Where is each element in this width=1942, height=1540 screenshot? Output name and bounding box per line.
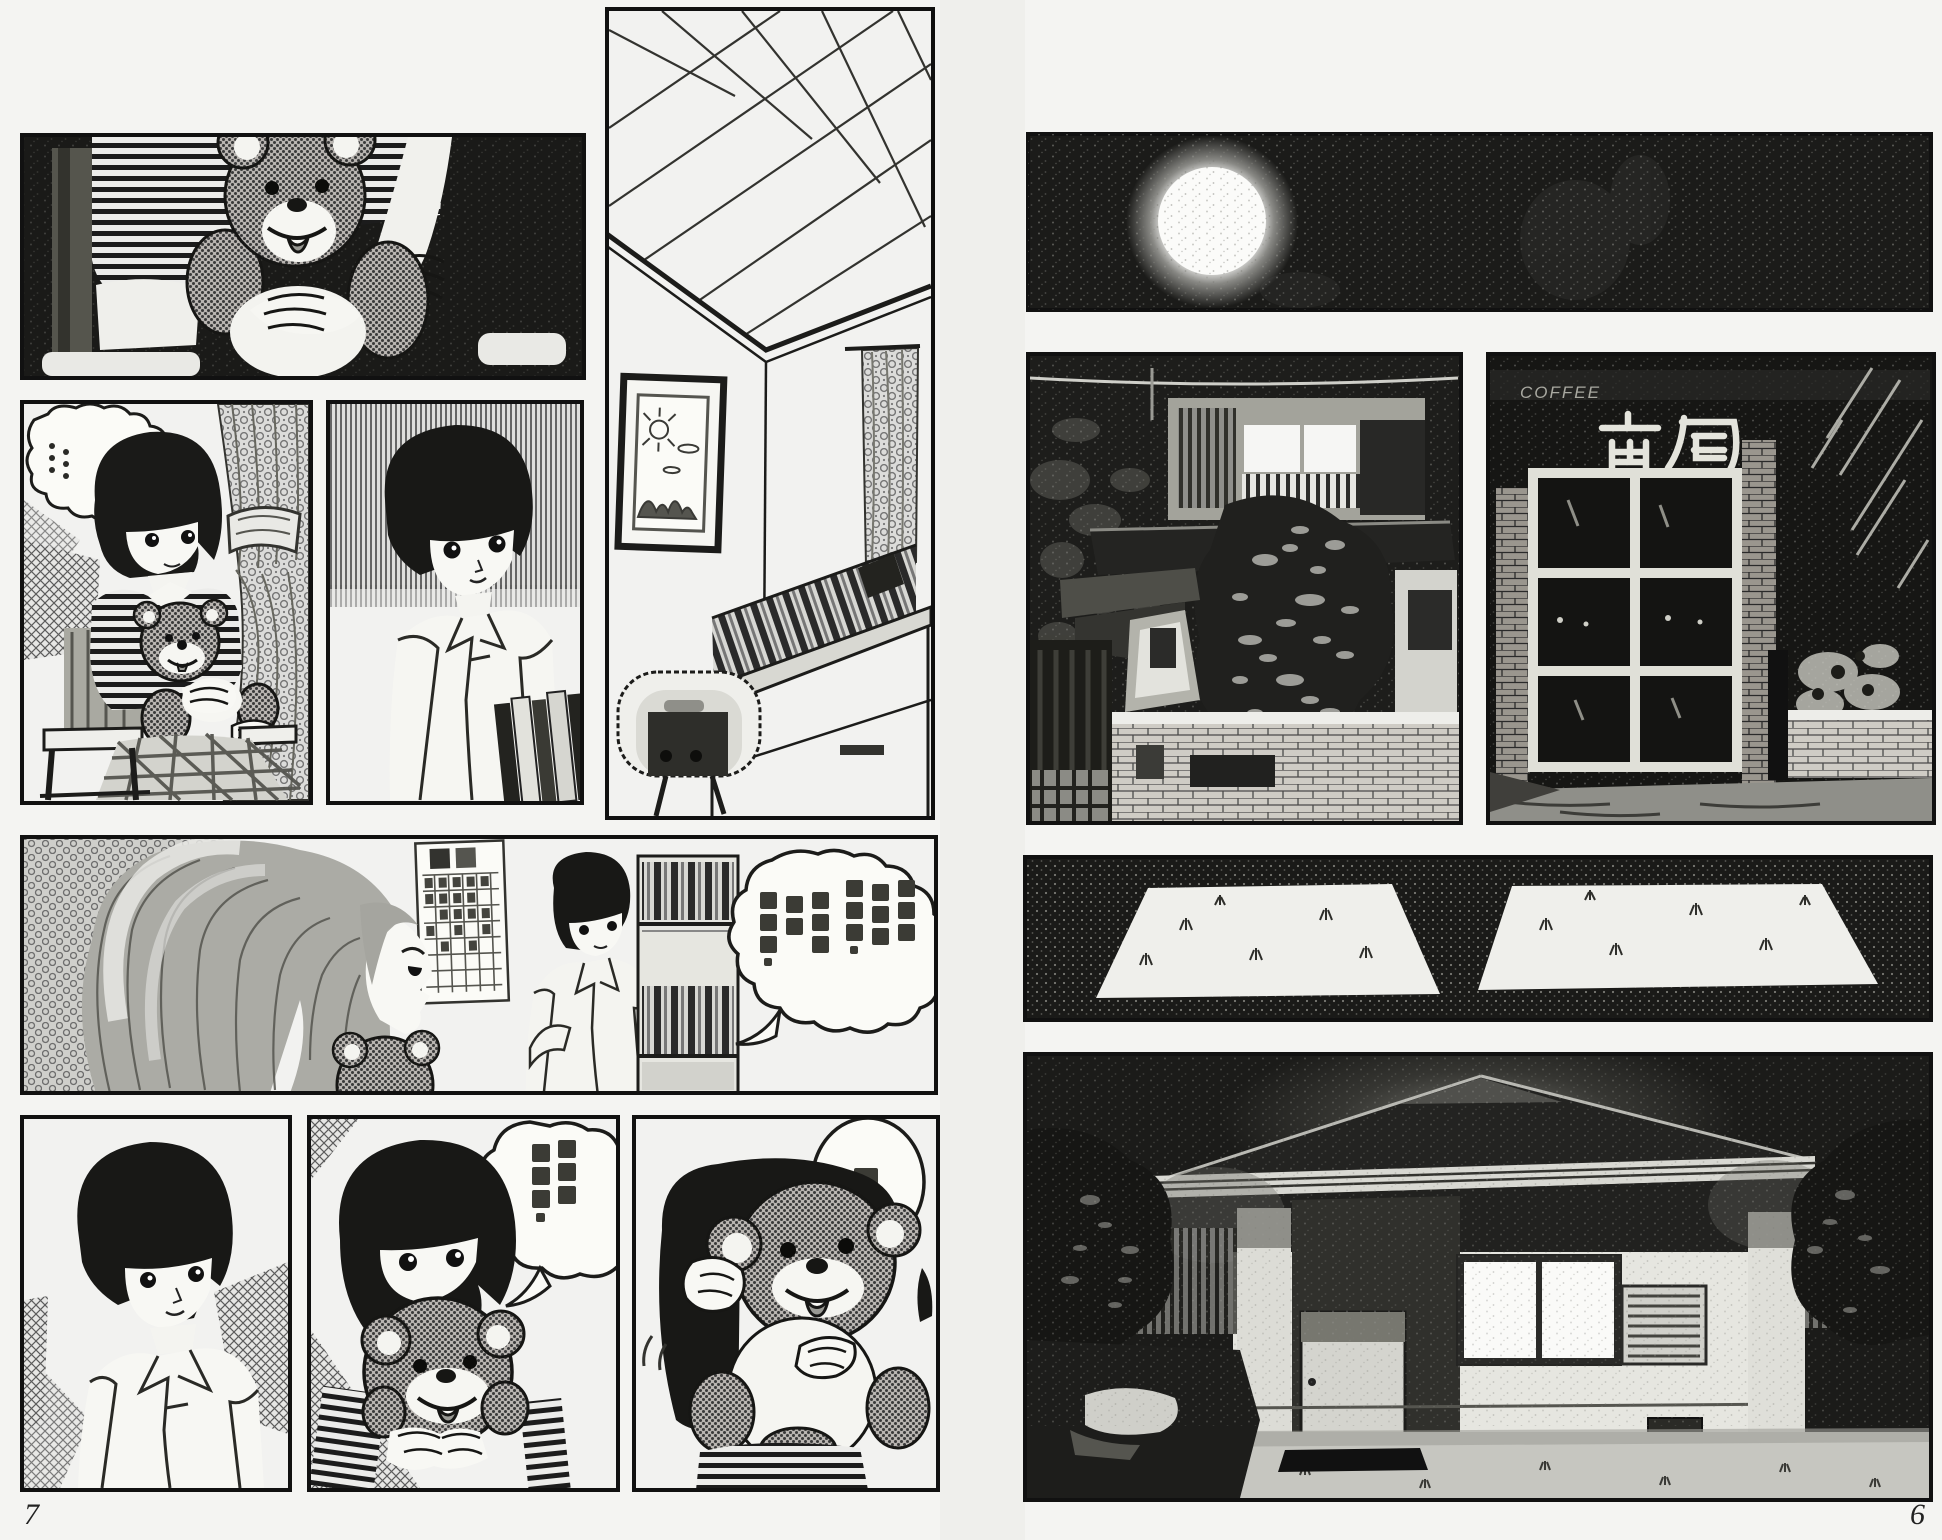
svg-text:7: 7 — [24, 1498, 41, 1531]
svg-text:COFFEE: COFFEE — [1520, 383, 1601, 402]
svg-text:6: 6 — [1910, 1498, 1925, 1531]
